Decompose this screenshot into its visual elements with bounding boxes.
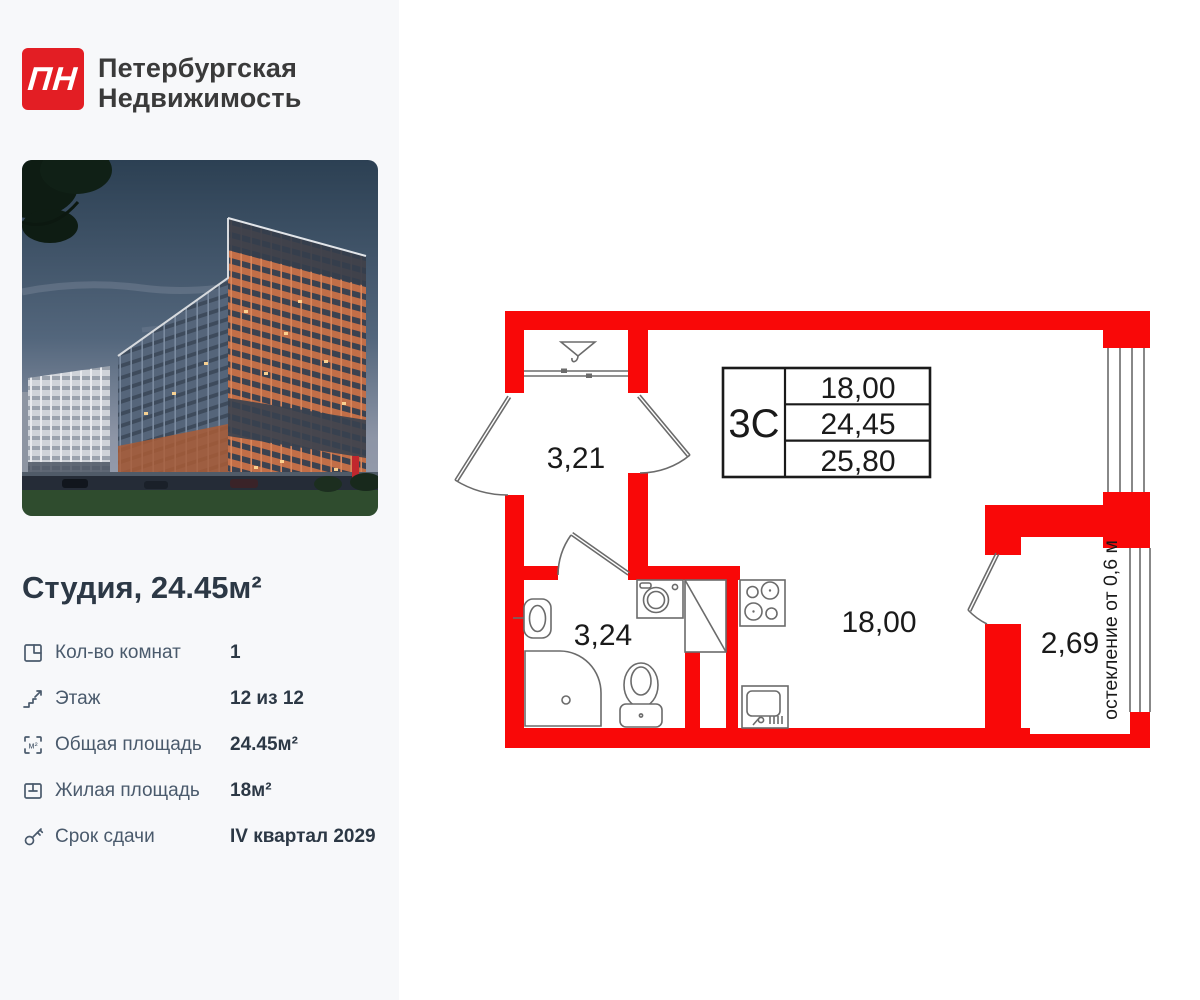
entry-door-right-leaf — [638, 395, 690, 457]
balcony-door-swing — [968, 610, 987, 624]
svg-text:м²: м² — [28, 741, 37, 751]
glazing-note-label: остекление от 0,6 м — [1100, 540, 1122, 720]
balcony-glazing-lines — [1130, 548, 1150, 712]
building-photo[interactable] — [22, 160, 378, 516]
rooms-icon — [22, 642, 44, 664]
detail-label: Жилая площадь — [55, 780, 200, 802]
wardrobe-track-stop — [586, 374, 592, 379]
detail-label: Кол-во комнат — [55, 642, 181, 664]
balcony-door-leaf — [968, 553, 999, 611]
detail-value: 1 — [230, 642, 241, 664]
wardrobe-track — [524, 371, 628, 376]
total-area-icon: м² — [22, 734, 44, 756]
spec-full-area: 25,80 — [820, 445, 895, 478]
detail-value: 18м² — [230, 780, 272, 802]
details-list: Кол-во комнат 1 Этаж 12 из 12 м² — [22, 641, 382, 871]
living-area-icon — [22, 780, 44, 802]
car — [230, 479, 258, 488]
spec-total-area: 24,45 — [820, 408, 895, 441]
entry-door-right-swing — [640, 455, 690, 473]
bush — [314, 476, 342, 492]
hanger-icon — [561, 342, 595, 356]
brand-name-line2: Недвижимость — [98, 83, 302, 113]
summary-panel: ПН Петербургская Недвижимость — [0, 0, 399, 1000]
shower — [525, 651, 601, 726]
bathroom-area-label: 3,24 — [574, 619, 632, 652]
entry-door-left-leaf — [455, 396, 511, 482]
balcony-area-label: 2,69 — [1041, 627, 1099, 660]
detail-row-total-area: м² Общая площадь 24.45м² — [22, 733, 382, 757]
detail-row-floor: Этаж 12 из 12 — [22, 687, 382, 711]
tree-foliage — [22, 209, 78, 243]
page-title: Студия, 24.45м² — [22, 570, 262, 606]
key-icon — [22, 826, 44, 848]
detail-row-living-area: Жилая площадь 18м² — [22, 779, 382, 803]
detail-value: 24.45м² — [230, 734, 298, 756]
detail-label: Срок сдачи — [55, 826, 155, 848]
spec-living-area: 18,00 — [820, 372, 895, 405]
hallway-area-label: 3,21 — [547, 442, 605, 475]
detail-value: IV квартал 2029 — [230, 826, 376, 848]
curb — [22, 472, 378, 476]
grass — [22, 490, 378, 516]
car — [62, 479, 88, 488]
living-area-label: 18,00 — [841, 606, 916, 639]
detail-value: 12 из 12 — [230, 688, 304, 710]
toilet-tank — [620, 704, 662, 727]
car — [144, 481, 168, 489]
detail-row-rooms: Кол-во комнат 1 — [22, 641, 382, 665]
stairs-icon — [22, 688, 44, 710]
unit-spec-table: 3С 18,00 24,45 25,80 — [723, 368, 930, 478]
hanger-hook — [572, 356, 578, 362]
brand-logo-text: ПН — [27, 60, 80, 98]
detail-label: Этаж — [55, 688, 100, 710]
brand-name: Петербургская Недвижимость — [98, 53, 302, 113]
entry-door-left-swing — [455, 480, 508, 495]
window-glazing-lines — [1108, 348, 1144, 492]
detail-row-deadline: Срок сдачи IV квартал 2029 — [22, 825, 382, 849]
brand-logo[interactable]: ПН — [22, 48, 84, 110]
detail-label: Общая площадь — [55, 734, 202, 756]
listing-page: ПН Петербургская Недвижимость — [0, 0, 1200, 1000]
toilet-bowl — [624, 663, 658, 707]
bathroom-door-swing — [558, 535, 571, 575]
bathroom-door-leaf — [571, 533, 630, 575]
unit-code-label: 3С — [728, 402, 779, 446]
floor-plan[interactable]: 3С 18,00 24,45 25,80 3,21 3,24 18,00 2,6… — [430, 290, 1170, 760]
wardrobe-track-stop — [561, 369, 567, 374]
brand-name-line1: Петербургская — [98, 53, 302, 83]
